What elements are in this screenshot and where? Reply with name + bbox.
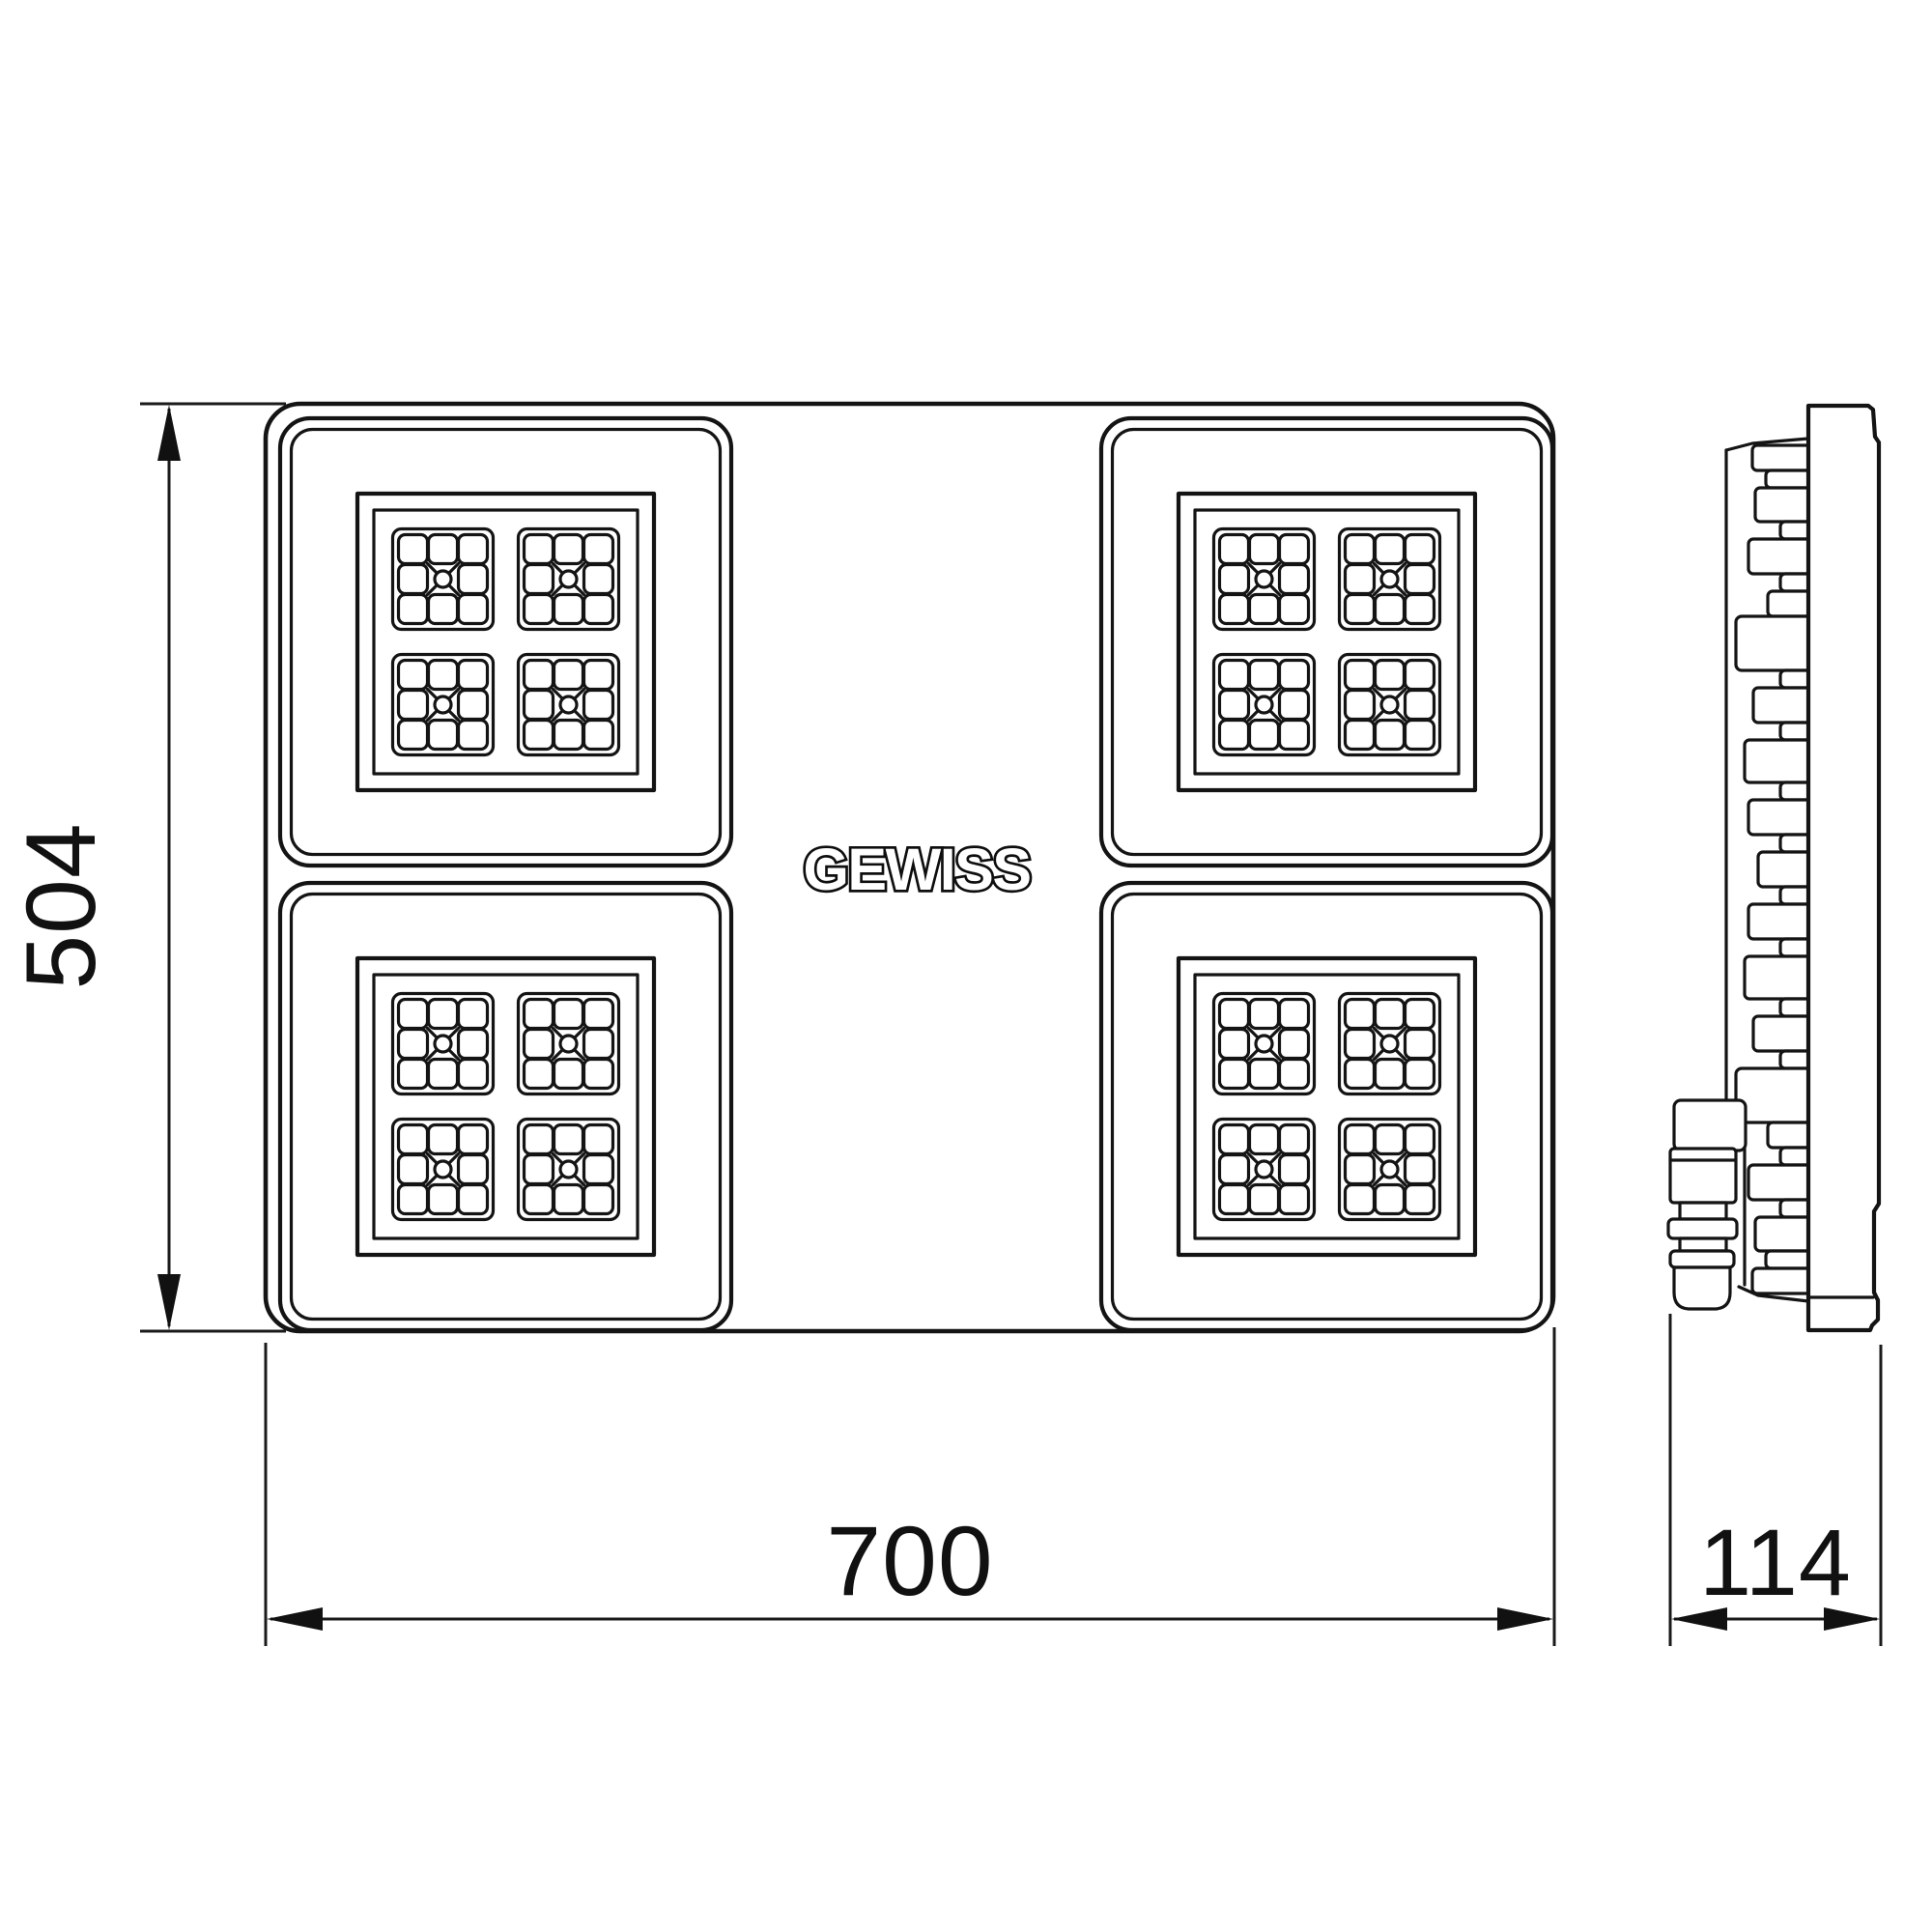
led-module-bottom-right [1101,883,1552,1330]
heatsink-fin [1748,800,1812,835]
led-module-top-left [280,418,731,866]
gland-body [1670,1149,1736,1203]
heatsink-fin [1736,616,1812,670]
technical-drawing-sheet: GEWISS [0,0,1932,1932]
side-cable-gland [1668,1149,1737,1309]
heatsink-fin [1752,445,1812,470]
heatsink-fin [1766,470,1812,488]
heatsink-fin [1768,591,1812,616]
front-view: GEWISS [266,404,1553,1331]
side-front-frame [1808,406,1879,1330]
heatsink-fin [1766,1251,1812,1268]
heatsink-fin [1752,1268,1812,1293]
side-heatsink-fins [1736,445,1812,1293]
brand-logo-text: GEWISS [803,837,1030,902]
heatsink-fin [1736,1068,1812,1122]
gland-nut [1668,1219,1737,1238]
side-view [1668,406,1879,1330]
heatsink-fin [1755,1217,1812,1251]
gland-nut [1670,1251,1734,1267]
arrowhead-left [267,1607,323,1631]
led-module-bottom-left [280,883,731,1330]
heatsink-fin [1745,740,1812,782]
heatsink-fin [1748,1165,1812,1200]
dimension-width-value: 700 [826,1506,993,1616]
arrowhead-up [157,405,181,461]
dimension-height-value: 504 [6,822,116,989]
gland-waist [1680,1203,1726,1219]
heatsink-fin [1745,956,1812,999]
dimension-depth: 114 [1670,1314,1881,1646]
heatsink-fin [1768,1122,1812,1148]
dimension-height: 504 [6,404,286,1331]
arrowhead-right [1497,1607,1553,1631]
heatsink-fin [1755,488,1812,522]
heatsink-fin [1753,688,1812,723]
arrowhead-down [157,1274,181,1330]
heatsink-fin [1758,852,1812,887]
side-mounting-bracket [1674,1100,1746,1151]
heatsink-fin [1748,539,1812,574]
gland-cap [1674,1267,1730,1309]
dimension-depth-value: 114 [1699,1510,1852,1615]
heatsink-fin [1748,904,1812,939]
dimension-width: 700 [266,1327,1554,1646]
drawing-canvas: GEWISS [0,0,1932,1932]
gland-waist [1680,1238,1726,1251]
heatsink-fin [1753,1016,1812,1051]
led-module-top-right [1101,418,1552,866]
